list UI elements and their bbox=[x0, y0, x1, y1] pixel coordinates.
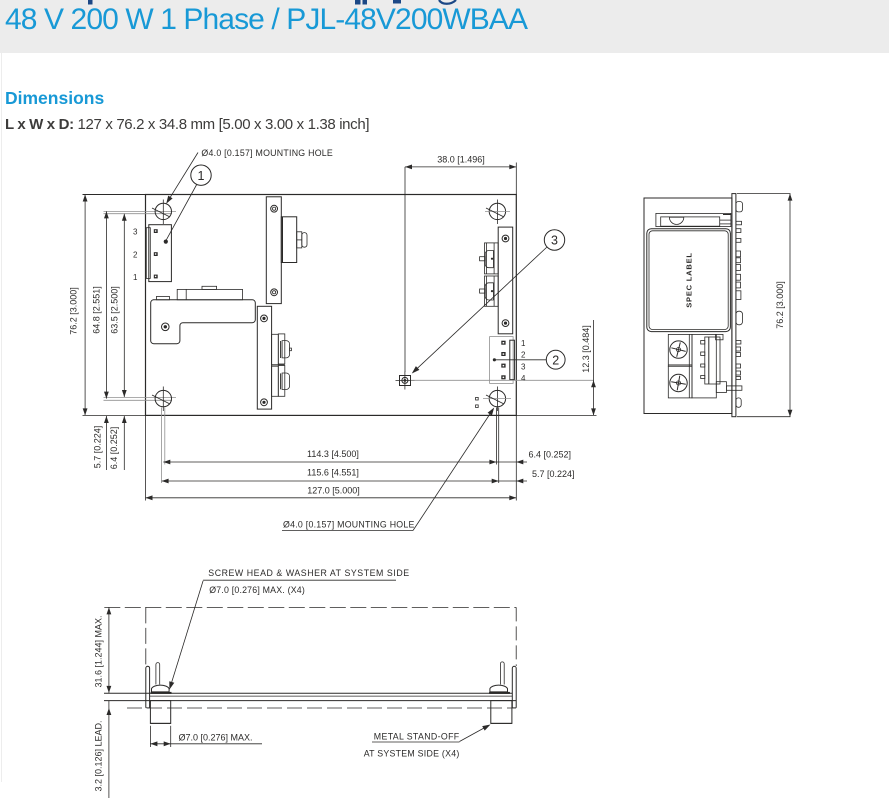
svg-text:SCREW HEAD & WASHER AT SYSTEM: SCREW HEAD & WASHER AT SYSTEM SIDE bbox=[208, 568, 409, 578]
svg-text:6.4 [0.252]: 6.4 [0.252] bbox=[529, 450, 572, 460]
svg-text:3: 3 bbox=[133, 228, 138, 237]
svg-text:SPEC LABEL: SPEC LABEL bbox=[685, 252, 694, 308]
svg-text:1: 1 bbox=[133, 273, 138, 282]
svg-text:2: 2 bbox=[552, 353, 559, 367]
svg-text:76.2 [3.000]: 76.2 [3.000] bbox=[775, 281, 785, 329]
svg-text:38.0 [1.496]: 38.0 [1.496] bbox=[437, 155, 485, 165]
svg-text:2: 2 bbox=[133, 250, 138, 259]
svg-text:3: 3 bbox=[551, 234, 558, 248]
svg-text:114.3 [4.500]: 114.3 [4.500] bbox=[307, 449, 359, 459]
svg-text:Ø7.0 [0.276] MAX. (X4): Ø7.0 [0.276] MAX. (X4) bbox=[209, 585, 305, 595]
svg-text:127.0 [5.000]: 127.0 [5.000] bbox=[307, 486, 360, 496]
svg-text:64.8 [2.551]: 64.8 [2.551] bbox=[92, 286, 102, 334]
svg-text:3: 3 bbox=[521, 362, 526, 371]
svg-text:Ø4.0 [0.157] MOUNTING HOLE: Ø4.0 [0.157] MOUNTING HOLE bbox=[201, 148, 333, 158]
svg-text:Ø7.0 [0.276] MAX.: Ø7.0 [0.276] MAX. bbox=[179, 733, 253, 743]
svg-text:31.6 [1.244] MAX.: 31.6 [1.244] MAX. bbox=[94, 615, 104, 687]
svg-text:3.2 [0.126] LEAD.: 3.2 [0.126] LEAD. bbox=[94, 720, 104, 791]
svg-text:5.7 [0.224]: 5.7 [0.224] bbox=[532, 469, 575, 479]
svg-text:AT SYSTEM SIDE (X4): AT SYSTEM SIDE (X4) bbox=[364, 748, 460, 758]
svg-text:1: 1 bbox=[198, 169, 205, 183]
svg-text:63.5 [2.500]: 63.5 [2.500] bbox=[110, 286, 120, 334]
svg-text:2: 2 bbox=[521, 351, 526, 360]
svg-text:4: 4 bbox=[521, 374, 526, 383]
svg-text:6.4 [0.252]: 6.4 [0.252] bbox=[109, 427, 119, 470]
svg-text:76.2 [3.000]: 76.2 [3.000] bbox=[69, 287, 79, 335]
svg-text:5.7 [0.224]: 5.7 [0.224] bbox=[93, 426, 103, 469]
svg-text:12.3 [0.484]: 12.3 [0.484] bbox=[581, 325, 591, 373]
svg-text:115.6 [4.551]: 115.6 [4.551] bbox=[307, 468, 359, 478]
svg-text:Ø4.0 [0.157] MOUNTING HOLE: Ø4.0 [0.157] MOUNTING HOLE bbox=[283, 519, 415, 529]
svg-text:METAL STAND-OFF: METAL STAND-OFF bbox=[374, 731, 460, 741]
svg-text:1: 1 bbox=[521, 339, 526, 348]
